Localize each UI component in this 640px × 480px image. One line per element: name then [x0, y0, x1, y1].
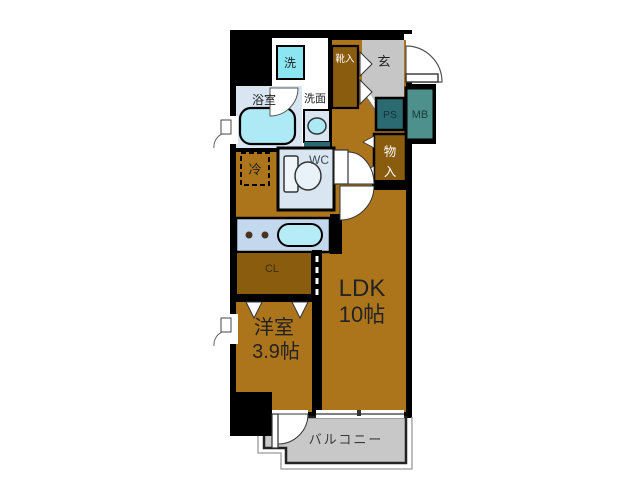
bathroom-window [221, 120, 231, 134]
bathroom-window-arc [214, 134, 222, 148]
stove-burner [246, 232, 253, 239]
balcony-door-leaf [272, 414, 278, 448]
structural-column [230, 392, 272, 436]
shoe-cabinet-label: 靴入 [335, 53, 355, 65]
closet-label: CL [265, 263, 279, 275]
window-center-tick [357, 410, 361, 416]
washing-machine-label: 洗 [284, 56, 296, 70]
entrance-label: 玄 [377, 54, 390, 69]
kitchen-sink [278, 224, 322, 246]
room-divider-wall [312, 250, 322, 412]
western-room-label: 洋室 [254, 316, 294, 339]
floor-plan-image: LDK 10帖 洋室 3.9帖 バルコニー 玄 浴室 洗面 洗 WC 冷 CL … [0, 0, 640, 480]
vanity-sink-bowl [308, 118, 326, 134]
hall-ldk-wall [372, 180, 406, 190]
storage-label-bottom: 入 [384, 165, 397, 179]
balcony-label: バルコニー [309, 432, 384, 447]
ldk-size-label: 10帖 [339, 302, 385, 327]
bathroom-label: 浴室 [252, 92, 276, 107]
bedroom-window-arc [214, 332, 222, 346]
toilet-label: WC [309, 153, 329, 167]
hallway-door-leaf [334, 150, 348, 184]
bathtub [240, 108, 295, 144]
storage-label-top: 物 [384, 145, 397, 159]
entrance-door-leaf [406, 74, 438, 82]
washroom-label: 洗面 [304, 92, 326, 105]
bedroom-window [221, 318, 231, 332]
western-room-size-label: 3.9帖 [252, 340, 300, 363]
closet-wall [232, 294, 312, 302]
refrigerator-label: 冷 [248, 162, 261, 177]
meter-box-label: MB [412, 109, 429, 121]
ldk-label: LDK [339, 275, 386, 302]
floor-plan-svg: LDK 10帖 洋室 3.9帖 バルコニー 玄 浴室 洗面 洗 WC 冷 CL … [0, 0, 640, 480]
pipe-space-label: PS [383, 109, 397, 121]
stove-burner [262, 232, 269, 239]
